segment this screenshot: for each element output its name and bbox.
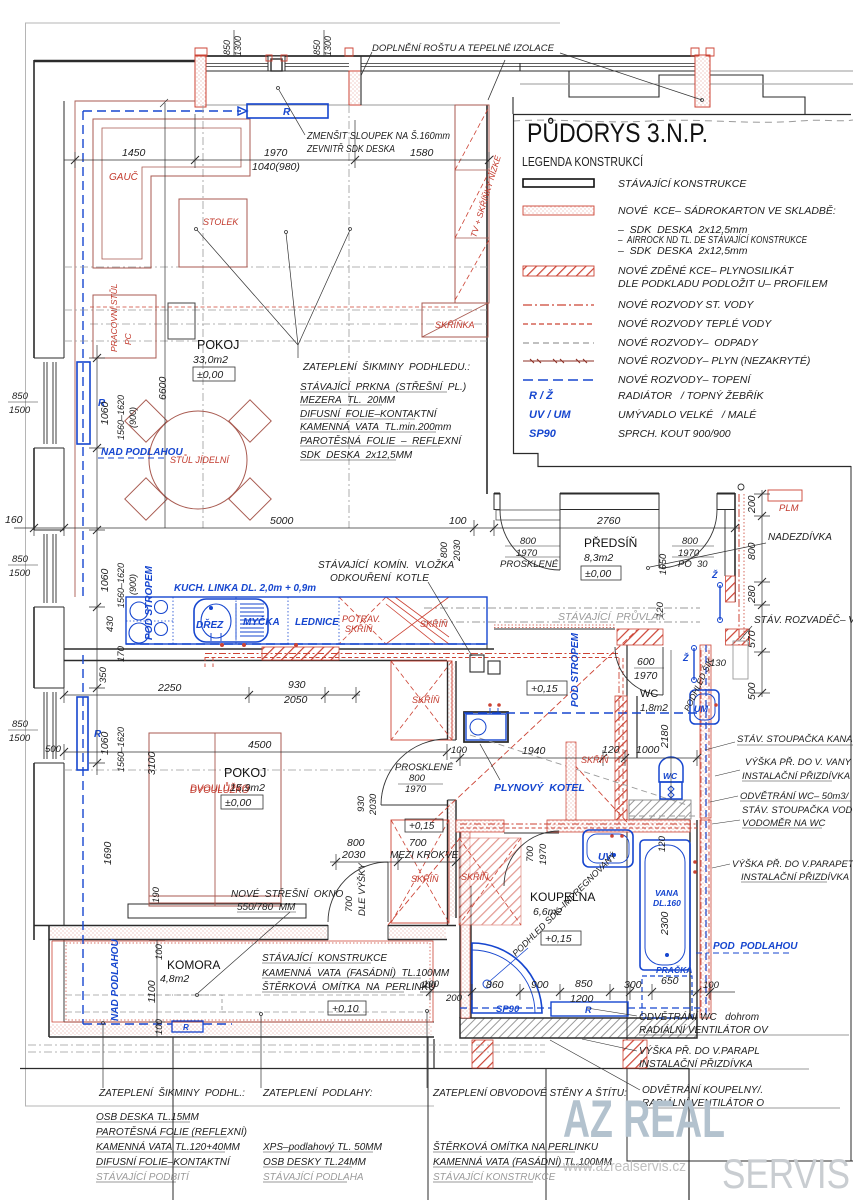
svg-text:Ž: Ž — [711, 569, 718, 580]
svg-text:+0,15: +0,15 — [531, 683, 558, 695]
svg-text:1500: 1500 — [9, 405, 31, 416]
svg-text:1060: 1060 — [99, 731, 111, 755]
svg-text:850: 850 — [222, 40, 232, 55]
svg-text:NADEZDÍVKA: NADEZDÍVKA — [768, 530, 832, 543]
svg-text:170: 170 — [116, 645, 127, 662]
svg-text:NOVÉ ROZVODY– PLYN (NEZAKRYTÉ): NOVÉ ROZVODY– PLYN (NEZAKRYTÉ) — [618, 354, 810, 367]
svg-text:SERVIS: SERVIS — [722, 1150, 850, 1197]
svg-text:4,8m2: 4,8m2 — [160, 973, 189, 985]
svg-text:GAUČ: GAUČ — [109, 170, 139, 183]
svg-text:SPRCH. KOUT 900/900: SPRCH. KOUT 900/900 — [618, 428, 731, 440]
svg-text:DLE VÝŠKY: DLE VÝŠKY — [357, 863, 368, 916]
svg-text:WC: WC — [640, 688, 658, 700]
svg-text:STÁV. STOUPAČKA KANAL: STÁV. STOUPAČKA KANAL — [737, 734, 853, 745]
svg-text:±0,00: ±0,00 — [197, 369, 223, 381]
svg-text:KAMENNÁ VATA (FASÁDNÍ) TL.1: KAMENNÁ VATA (FASÁDNÍ) TL.100MM — [262, 966, 450, 979]
svg-text:800: 800 — [520, 536, 537, 547]
svg-text:850: 850 — [312, 40, 322, 55]
svg-text:ZMENŠIT SLOUPEK NA Š.160mm: ZMENŠIT SLOUPEK NA Š.160mm — [306, 129, 450, 142]
svg-text:500: 500 — [45, 744, 62, 755]
svg-text:SKŘÍŇ: SKŘÍŇ — [581, 755, 609, 765]
svg-text:+0,15: +0,15 — [409, 821, 435, 832]
svg-text:190: 190 — [151, 886, 162, 903]
svg-text:KOMORA: KOMORA — [167, 958, 220, 972]
svg-text:2030: 2030 — [452, 539, 463, 562]
svg-text:PAROTĚSNÁ FOLIE – REFLEXNÍ: PAROTĚSNÁ FOLIE – REFLEXNÍ — [300, 434, 463, 447]
svg-text:NOVÉ ROZVODY TEPLÉ VODY: NOVÉ ROZVODY TEPLÉ VODY — [618, 317, 772, 330]
svg-text:ZATEPLENÍ ŠIKMINY PODHLEDU.:: ZATEPLENÍ ŠIKMINY PODHLEDU.: — [302, 360, 470, 373]
svg-text:STÁVAJÍCÍ KONSTRUKCE: STÁVAJÍCÍ KONSTRUKCE — [262, 951, 387, 964]
svg-text:NOVÉ ROZVODY ST. VODY: NOVÉ ROZVODY ST. VODY — [618, 298, 754, 311]
svg-text:3100: 3100 — [146, 751, 158, 775]
svg-text:POD STROPEM: POD STROPEM — [570, 632, 581, 707]
svg-text:POD STROPEM: POD STROPEM — [144, 565, 155, 640]
svg-text:2250: 2250 — [157, 682, 182, 694]
svg-text:DLE PODKLADU PODLOŽIT U– PROFI: DLE PODKLADU PODLOŽIT U– PROFILEM — [618, 277, 828, 290]
svg-text:LEGENDA KONSTRUKCÍ: LEGENDA KONSTRUKCÍ — [522, 154, 643, 169]
svg-text:1200: 1200 — [570, 993, 594, 1005]
svg-text:850: 850 — [12, 719, 29, 730]
svg-text:POD PODLAHOU: POD PODLAHOU — [713, 941, 798, 952]
svg-text:R: R — [585, 1005, 592, 1015]
svg-text:1560–1620: 1560–1620 — [116, 563, 126, 608]
svg-text:+0,10: +0,10 — [332, 1003, 359, 1015]
svg-text:PAROTĚSNÁ FOLIE (REFLEXNÍ): PAROTĚSNÁ FOLIE (REFLEXNÍ) — [96, 1125, 247, 1138]
svg-text:STÁVAJÍCÍ PRŮVLAK: STÁVAJÍCÍ PRŮVLAK — [558, 609, 666, 623]
svg-text:700: 700 — [409, 837, 427, 849]
svg-text:2050: 2050 — [283, 694, 308, 706]
svg-text:1560–1620: 1560–1620 — [116, 727, 126, 772]
svg-text:1970: 1970 — [538, 843, 549, 865]
svg-text:6600: 6600 — [157, 376, 169, 400]
svg-text:STÁVAJÍCÍ PRKNA (STŘEŠNÍ PL: STÁVAJÍCÍ PRKNA (STŘEŠNÍ PL.) — [300, 380, 466, 393]
svg-text:700: 700 — [525, 845, 536, 862]
svg-text:ZATEPLENÍ ŠIKMINY PODHL.:: ZATEPLENÍ ŠIKMINY PODHL.: — [98, 1086, 245, 1099]
svg-text:ODVĚTRÁNÍ WC– 50m3/: ODVĚTRÁNÍ WC– 50m3/ — [740, 791, 850, 802]
svg-text:ZEVNITŘ SDK DESKA: ZEVNITŘ SDK DESKA — [306, 142, 395, 155]
svg-text:STÁVAJÍCÍ PODLAHA: STÁVAJÍCÍ PODLAHA — [263, 1170, 364, 1183]
svg-text:1580: 1580 — [410, 147, 434, 159]
svg-text:930: 930 — [288, 679, 306, 691]
svg-text:SKŘÍŇ: SKŘÍŇ — [411, 874, 439, 884]
svg-text:STÁVAJÍCÍ PODBITÍ: STÁVAJÍCÍ PODBITÍ — [96, 1170, 191, 1183]
svg-text:VODOMĚR NA WC: VODOMĚR NA WC — [742, 818, 826, 829]
svg-text:1,8m2: 1,8m2 — [640, 703, 668, 714]
svg-text:PŮDORYS 3.N.P.: PŮDORYS 3.N.P. — [527, 116, 708, 148]
svg-text:KAMENNÁ VATA TL.120+40MM: KAMENNÁ VATA TL.120+40MM — [96, 1140, 241, 1153]
svg-text:MYČKA: MYČKA — [243, 615, 280, 628]
svg-text:1970: 1970 — [634, 670, 658, 682]
svg-text:350: 350 — [98, 666, 109, 683]
svg-text:±0,00: ±0,00 — [225, 797, 251, 809]
svg-text:DOPLNĚNÍ ROŠTU A TEPELNÉ IZOLA: DOPLNĚNÍ ROŠTU A TEPELNÉ IZOLACE — [372, 43, 555, 54]
svg-text:INSTALAČNÍ PŘIZDÍVKA: INSTALAČNÍ PŘIZDÍVKA — [639, 1057, 753, 1070]
svg-text:1970: 1970 — [516, 548, 538, 559]
svg-text:1500: 1500 — [9, 568, 31, 579]
svg-text:Ž: Ž — [682, 652, 689, 663]
svg-text:1000: 1000 — [636, 744, 660, 756]
svg-text:PŘEDSÍŇ: PŘEDSÍŇ — [584, 535, 637, 550]
svg-text:(900): (900) — [128, 407, 138, 428]
svg-text:POTRAV.: POTRAV. — [342, 614, 380, 624]
svg-text:RADIÁLNÍ VENTILÁTOR OV: RADIÁLNÍ VENTILÁTOR OV — [639, 1023, 769, 1036]
svg-text:STOLEK: STOLEK — [203, 217, 239, 227]
svg-text:PLM: PLM — [779, 503, 799, 514]
svg-text:NOVÉ ZDĚNÉ KCE– PLYNOSILIKÁT: NOVÉ ZDĚNÉ KCE– PLYNOSILIKÁT — [618, 264, 795, 277]
svg-text:±0,00: ±0,00 — [585, 568, 611, 580]
svg-text:4500: 4500 — [248, 739, 272, 751]
svg-text:VÝŠKA PŘ. DO V.PARAPET: VÝŠKA PŘ. DO V.PARAPET — [732, 859, 853, 870]
svg-text:UMÝVADLO VELKÉ / MALÉ: UMÝVADLO VELKÉ / MALÉ — [618, 408, 757, 421]
svg-text:100: 100 — [703, 980, 720, 991]
svg-text:DIFUSNÍ FOLIE–KONTAKTNÍ: DIFUSNÍ FOLIE–KONTAKTNÍ — [300, 407, 439, 420]
svg-text:2030: 2030 — [368, 793, 379, 816]
svg-text:PRAČKA: PRAČKA — [656, 964, 692, 975]
svg-text:SKŘÍŇ: SKŘÍŇ — [420, 619, 448, 629]
svg-text:ŠTĚRKOVÁ OMÍTKA NA PERLINKU: ŠTĚRKOVÁ OMÍTKA NA PERLINKU — [262, 980, 436, 993]
svg-text:2760: 2760 — [596, 515, 621, 527]
svg-text:DIFUSNÍ FOLIE–KONTAKTNÍ: DIFUSNÍ FOLIE–KONTAKTNÍ — [96, 1155, 232, 1168]
svg-text:AZ REAL: AZ REAL — [563, 1090, 725, 1149]
svg-text:1970: 1970 — [264, 147, 288, 159]
svg-text:160: 160 — [5, 514, 23, 526]
svg-text:8,3m2: 8,3m2 — [584, 552, 613, 564]
svg-text:850: 850 — [12, 554, 29, 565]
svg-text:ZATEPLENÍ PODLAHY:: ZATEPLENÍ PODLAHY: — [262, 1086, 373, 1099]
svg-text:SKŘÍŇ: SKŘÍŇ — [461, 872, 489, 882]
svg-text:1300: 1300 — [323, 36, 333, 56]
svg-text:WC: WC — [663, 771, 678, 781]
svg-text:www.azrealservis.cz: www.azrealservis.cz — [562, 1159, 686, 1175]
svg-text:UM: UM — [694, 704, 708, 714]
svg-text:RADIÁTOR / TOPNÝ ŽEBŘÍK: RADIÁTOR / TOPNÝ ŽEBŘÍK — [618, 389, 764, 402]
svg-text:PRACOVNÍ STŮL: PRACOVNÍ STŮL — [108, 283, 119, 352]
svg-text:PROSKLENÉ: PROSKLENÉ — [500, 559, 559, 570]
svg-text:POKOJ: POKOJ — [224, 766, 266, 780]
svg-text:UV / UM: UV / UM — [529, 409, 571, 421]
svg-text:INSTALAČNÍ PŘIZDÍVKA: INSTALAČNÍ PŘIZDÍVKA — [741, 872, 849, 883]
svg-text:PC: PC — [123, 332, 133, 345]
svg-text:PLYNOVÝ KOTEL: PLYNOVÝ KOTEL — [494, 781, 585, 794]
svg-text:PROSKLENÉ: PROSKLENÉ — [395, 762, 454, 773]
svg-text:STÁVAJÍCÍ KONSTRUKCE: STÁVAJÍCÍ KONSTRUKCE — [433, 1170, 556, 1183]
svg-text:SKŘÍŇ: SKŘÍŇ — [345, 624, 373, 634]
svg-text:R / Ž: R / Ž — [529, 389, 554, 402]
svg-text:1100: 1100 — [146, 980, 158, 1003]
svg-text:1040(980): 1040(980) — [252, 161, 300, 173]
svg-text:OSB DESKA TL.15MM: OSB DESKA TL.15MM — [96, 1112, 199, 1123]
svg-text:2300: 2300 — [659, 911, 671, 936]
svg-text:OSB DESKY TL.24MM: OSB DESKY TL.24MM — [263, 1157, 366, 1168]
svg-text:800: 800 — [439, 541, 450, 558]
svg-text:INSTALAČNÍ PŘIZDÍVKA: INSTALAČNÍ PŘIZDÍVKA — [742, 771, 850, 782]
svg-text:2180: 2180 — [659, 724, 671, 749]
svg-text:500: 500 — [746, 682, 758, 700]
svg-text:SP90: SP90 — [529, 428, 557, 440]
svg-text:200: 200 — [445, 993, 463, 1004]
svg-text:SDK DESKA 2x12,5MM: SDK DESKA 2x12,5MM — [300, 450, 413, 461]
svg-text:100: 100 — [154, 943, 165, 960]
svg-text:800: 800 — [347, 837, 365, 849]
svg-text:KUCH. LINKA DL. 2,0m + 0,9m: KUCH. LINKA DL. 2,0m + 0,9m — [174, 582, 316, 594]
svg-text:(900): (900) — [128, 574, 138, 595]
svg-text:NAD PODLAHOU: NAD PODLAHOU — [110, 939, 121, 1021]
svg-text:1500: 1500 — [9, 733, 31, 744]
svg-text:1560–1620: 1560–1620 — [116, 395, 126, 440]
svg-text:ODKOUŘENÍ KOTLE: ODKOUŘENÍ KOTLE — [330, 571, 429, 584]
svg-text:PO 30: PO 30 — [678, 559, 708, 570]
svg-text:1450: 1450 — [122, 147, 146, 159]
svg-text:860: 860 — [486, 979, 504, 991]
svg-text:5000: 5000 — [270, 515, 294, 527]
svg-text:VANA: VANA — [655, 888, 678, 898]
svg-text:650: 650 — [661, 975, 679, 987]
svg-text:XPS–podlahový TL. 50MM: XPS–podlahový TL. 50MM — [262, 1142, 383, 1153]
svg-text:33,0m2: 33,0m2 — [193, 354, 228, 366]
svg-text:1690: 1690 — [102, 841, 114, 865]
svg-text:POKOJ: POKOJ — [197, 338, 239, 352]
svg-text:120: 120 — [657, 835, 668, 852]
svg-text:2030: 2030 — [341, 849, 366, 861]
svg-text:NOVÉ ROZVODY– TOPENÍ: NOVÉ ROZVODY– TOPENÍ — [618, 373, 752, 386]
svg-text:800: 800 — [409, 773, 426, 784]
svg-text:STÁV. STOUPAČKA VODY.: STÁV. STOUPAČKA VODY. — [742, 805, 853, 816]
svg-text:SP90: SP90 — [496, 1004, 520, 1015]
svg-text:DL.160: DL.160 — [653, 898, 681, 908]
svg-text:850: 850 — [575, 978, 593, 990]
svg-text:1940: 1940 — [522, 745, 546, 757]
svg-text:1300: 1300 — [233, 36, 243, 56]
svg-text:– SDK DESKA 2x12,5mm: – SDK DESKA 2x12,5mm — [617, 245, 748, 257]
svg-text:LEDNICE: LEDNICE — [295, 617, 339, 628]
svg-text:+0,15: +0,15 — [545, 933, 572, 945]
svg-text:280: 280 — [746, 585, 758, 604]
svg-text:SKŘÍŇ: SKŘÍŇ — [412, 695, 440, 705]
svg-text:KAMENNÁ VATA TL.min.200mm: KAMENNÁ VATA TL.min.200mm — [300, 420, 451, 433]
svg-text:100: 100 — [451, 745, 468, 756]
svg-text:ODVĚTRÁNÍ WC dohrom: ODVĚTRÁNÍ WC dohrom — [639, 1010, 759, 1023]
svg-text:15,9m2: 15,9m2 — [230, 782, 265, 794]
svg-text:STÁVAJÍCÍ KONSTRUKCE: STÁVAJÍCÍ KONSTRUKCE — [618, 177, 747, 190]
svg-text:850: 850 — [12, 391, 29, 402]
svg-text:300: 300 — [624, 979, 642, 991]
svg-text:DŘEZ: DŘEZ — [196, 618, 224, 631]
svg-text:900: 900 — [531, 979, 549, 991]
svg-text:800: 800 — [682, 536, 699, 547]
svg-text:930: 930 — [356, 795, 367, 812]
svg-text:600: 600 — [637, 656, 655, 668]
svg-text:VÝŠKA PŘ. DO V.PARAPL: VÝŠKA PŘ. DO V.PARAPL — [639, 1044, 760, 1057]
svg-text:STÁV. ROZVADĚČ– V: STÁV. ROZVADĚČ– V — [754, 613, 853, 626]
svg-text:100: 100 — [154, 1018, 165, 1035]
svg-text:MEZI KROKVE: MEZI KROKVE — [390, 850, 459, 861]
svg-text:100: 100 — [449, 515, 467, 527]
svg-text:200: 200 — [746, 495, 758, 514]
svg-text:430: 430 — [105, 615, 116, 632]
svg-text:700: 700 — [344, 895, 355, 912]
svg-text:550/780 MM: 550/780 MM — [237, 902, 296, 913]
svg-text:1060: 1060 — [99, 568, 111, 592]
svg-text:NOVÉ KCE– SÁDROKARTON VE SKLA: NOVÉ KCE– SÁDROKARTON VE SKLADBĚ: — [618, 204, 836, 217]
svg-text:SKŘÍŇKA: SKŘÍŇKA — [435, 320, 475, 330]
svg-text:NOVÉ ROZVODY– ODPADY: NOVÉ ROZVODY– ODPADY — [618, 336, 759, 349]
svg-text:VÝŠKA PŘ. DO V. VANY: VÝŠKA PŘ. DO V. VANY — [745, 757, 852, 768]
svg-text:R: R — [183, 1023, 189, 1032]
svg-text:1970: 1970 — [405, 784, 427, 795]
svg-text:NAD PODLAHOU: NAD PODLAHOU — [101, 447, 183, 458]
svg-text:MEZERA TL. 20MM: MEZERA TL. 20MM — [300, 395, 396, 406]
svg-text:NOVÉ STŘEŠNÍ OKNO: NOVÉ STŘEŠNÍ OKNO — [231, 887, 343, 900]
svg-text:STÁVAJÍCÍ KOMÍN. VLOŽKA: STÁVAJÍCÍ KOMÍN. VLOŽKA — [318, 558, 454, 571]
svg-text:1060: 1060 — [99, 401, 111, 425]
